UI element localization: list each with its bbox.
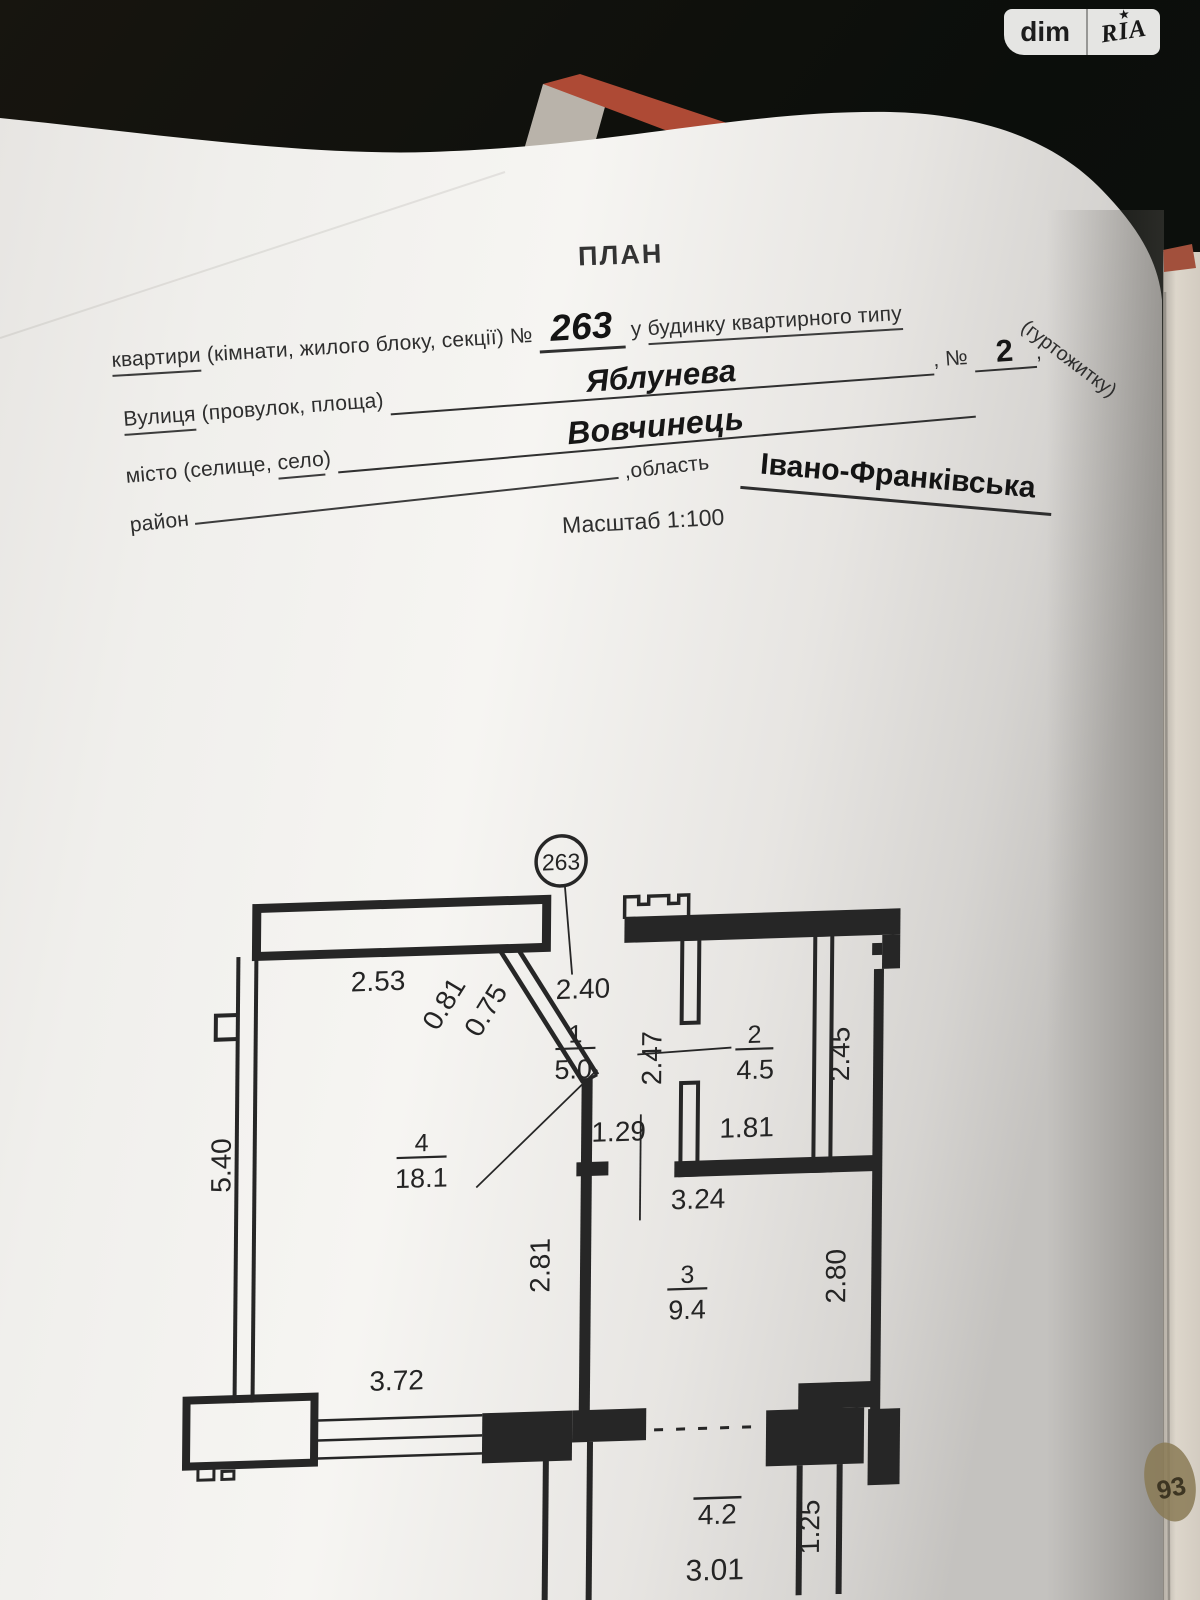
wall-room4-left-pier: [186, 1397, 315, 1467]
window-line-top: [314, 1415, 482, 1420]
wall-room4-right-pier: [482, 1410, 572, 1463]
wall-right-notch: [872, 943, 882, 955]
wall-room3-bottom-right: [830, 1381, 876, 1408]
room1-area: 5.0: [554, 1054, 592, 1085]
window-line-bottom: [314, 1453, 482, 1458]
dim-room2-width: 1.81: [719, 1111, 774, 1144]
unit-leader-line: [564, 886, 573, 975]
wall-balcony-stem-right: [839, 1464, 840, 1594]
room2-number: 2: [747, 1021, 761, 1049]
wall-hall-stub: [576, 1161, 608, 1176]
window-line-mid: [314, 1435, 482, 1440]
room4-number: 4: [415, 1129, 429, 1157]
dim-shaft-side: 2.45: [824, 1026, 855, 1081]
wall-hall-room2-bottom: [674, 1155, 880, 1177]
wall-left-tick: [216, 1015, 238, 1040]
room3-area: 9.4: [668, 1294, 706, 1325]
wall-divider: [584, 1078, 587, 1424]
dim-hall-side: 2.47: [636, 1030, 667, 1085]
wall-balcony-column-right: [589, 1442, 590, 1600]
dim-room3-side: 2.80: [820, 1248, 851, 1303]
room2-area: 4.5: [736, 1054, 774, 1085]
wall-balcony-column-left: [545, 1443, 546, 1600]
page-title: ПЛАН: [577, 239, 663, 273]
dim-hall-opening: 1.29: [591, 1115, 646, 1148]
floor-plan: 263 2.53 0.81 0.75 2.40 2.47 2.45 1.29 1…: [163, 821, 950, 1600]
label-village: село: [277, 448, 326, 480]
wall-room3-bottom-left: [572, 1408, 646, 1442]
dim-top-left: 2.53: [351, 965, 406, 998]
apartment-number-value: 263: [537, 304, 626, 354]
dim-window-width: 3.72: [369, 1364, 424, 1397]
wall-top-band: [256, 899, 546, 956]
label-street: Вулиця: [123, 403, 197, 436]
stamp-number: 93: [1154, 1470, 1189, 1505]
star-icon: ★: [1117, 9, 1131, 24]
wall-left-inner: [253, 956, 257, 1402]
room4-area: 18.1: [395, 1162, 448, 1194]
label-connector: у: [624, 317, 648, 341]
wall-right-exterior: [875, 969, 879, 1417]
dim-left-side: 5.40: [205, 1138, 236, 1193]
house-number-value: 2: [972, 333, 1036, 372]
watermark-dim-label: dim: [1004, 16, 1086, 48]
watermark-ria-label: RIA ★: [1087, 13, 1160, 52]
page-curl-shadow: [1046, 210, 1164, 1600]
dim-entry-width: 2.40: [556, 972, 611, 1005]
wall-right-corner: [882, 934, 900, 969]
dim-room3-width: 3.24: [671, 1183, 726, 1216]
balcony-depth: 1.25: [794, 1499, 825, 1554]
wall-bottom-right-corner: [867, 1408, 900, 1485]
balcony-width: 3.01: [685, 1553, 744, 1588]
room3-number: 3: [680, 1261, 694, 1289]
unit-circle-number: 263: [542, 848, 581, 875]
photo-of-floor-plan-document: 93 dim RIA ★ ПЛАН квартири (кімнати, жил…: [0, 0, 1200, 1600]
street-number-label: , №: [932, 346, 974, 372]
room1-number: 1: [569, 1020, 583, 1048]
wall-top-right: [624, 908, 900, 943]
wall-balcony-pier: [766, 1407, 864, 1466]
wall-room2-left-upper: [682, 939, 700, 1024]
pier-notch-b: [222, 1471, 234, 1479]
dim-inner-wall: 2.81: [524, 1238, 555, 1293]
balcony-area: 4.2: [698, 1498, 737, 1530]
floor-plan-drawing: 263 2.53 0.81 0.75 2.40 2.47 2.45 1.29 1…: [163, 821, 950, 1600]
label-apartment: квартири: [111, 344, 202, 377]
dimria-watermark-badge: dim RIA ★: [1004, 9, 1160, 55]
balcony-dashed-line: [654, 1426, 764, 1429]
